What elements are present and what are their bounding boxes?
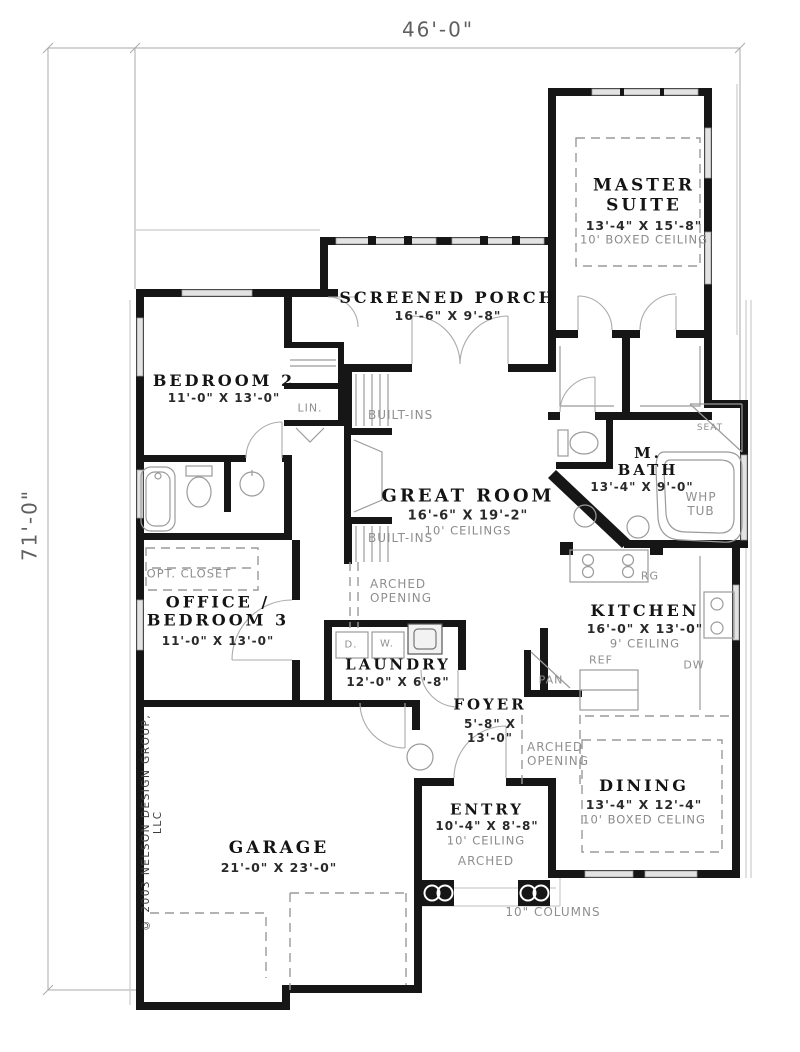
room-entry-size: 10'-4" X 8'-8" [435,820,538,834]
closet-rod-left [560,346,614,406]
room-laundry-size: 12'-0" X 6'-8" [346,676,449,690]
closet-rod-right [640,346,700,406]
built-ins-upper-label: BUILT-INS [368,409,433,423]
room-screened-porch: SCREENED PORCH [339,289,556,307]
room-kitchen-size: 16'-0" X 13'-0" [587,622,704,636]
room-foyer: FOYER [453,696,526,713]
linen-chevron [296,428,324,442]
room-foyer-size: 5'-8" X 13'-0" [457,718,523,746]
cooktop-island [570,550,648,582]
room-master-suite-size: 13'-4" X 15'-8" [586,219,703,233]
room-dining-ceiling: 10' BOXED CELING [582,813,706,826]
arched-opening-dining-label: ARCHED OPENING [527,741,599,769]
room-garage: GARAGE [229,839,330,859]
mbath-sink-2 [627,516,649,538]
mbath-toilet-tank [558,430,568,456]
columns-label: 10" COLUMNS [505,906,600,920]
built-ins-lower-label: BUILT-INS [368,532,433,546]
copyright-text: © 2003 NELSON DESIGN GROUP, LLC [140,707,164,937]
bedroom2-closet-rod [290,360,336,366]
arched-opening-hall-label: ARCHED OPENING [370,578,440,606]
room-office-bedroom3: OFFICE / BEDROOM 3 [131,594,306,631]
floor-plan-page: 46'-0" 71'-0" MASTER SUITE 13'-4" X 15'-… [0,0,800,1052]
water-heater-symbol [407,744,433,770]
room-great-room-ceiling: 10' CEILINGS [425,524,512,537]
garage-ceiling-line-2 [290,893,406,990]
room-garage-size: 21'-0" X 23'-0" [221,861,338,875]
room-master-suite: MASTER SUITE [564,176,724,215]
fireplace-inner [354,440,382,512]
room-entry: ENTRY [450,801,524,818]
dimension-height: 71'-0" [19,489,42,561]
refrigerator-label: REF [589,655,613,668]
range-label: RG [641,571,659,584]
seat-label: SEAT [697,423,723,433]
dishwasher-label: DW [683,660,704,673]
room-entry-ceiling: 10' CEILING [447,834,525,847]
room-great-room-size: 16'-6" X 19'-2" [408,510,529,525]
room-dining: DINING [599,777,689,795]
mbath-toilet-bowl [570,432,598,454]
whirlpool-tub-label: WHP TUB [678,491,724,519]
room-kitchen-ceiling: 9' CEILING [610,637,680,650]
room-bedroom2: BEDROOM 2 [153,372,295,390]
floor-plan-drawing [0,0,800,1052]
room-entry-note: ARCHED [458,855,514,869]
room-kitchen: KITCHEN [591,602,700,620]
room-dining-size: 13'-4" X 12'-4" [586,798,703,812]
room-office-bedroom3-size: 11'-0" X 13'-0" [162,635,275,649]
washer-label: W. [380,638,394,650]
garage-ceiling-line-1 [150,913,266,978]
dryer-label: D. [345,639,358,651]
arched-opening-hall-lines [350,562,358,628]
room-laundry: LAUNDRY [345,656,451,673]
room-screened-porch-size: 16'-6" X 9'-8" [395,309,502,323]
toilet-tank [186,466,212,476]
room-master-suite-ceiling: 10' BOXED CEILING [580,233,708,246]
room-bedroom2-size: 11'-0" X 13'-0" [168,392,281,406]
room-great-room: GREAT ROOM [382,487,555,508]
dimension-width: 46'-0" [402,19,474,42]
linen-closet-label: LIN. [297,403,322,416]
opt-closet-label: OPT. CLOSET [147,567,232,580]
pantry-label: PAN [539,675,564,688]
toilet-bowl [187,477,211,507]
room-m-bath: M. BATH [613,445,683,480]
